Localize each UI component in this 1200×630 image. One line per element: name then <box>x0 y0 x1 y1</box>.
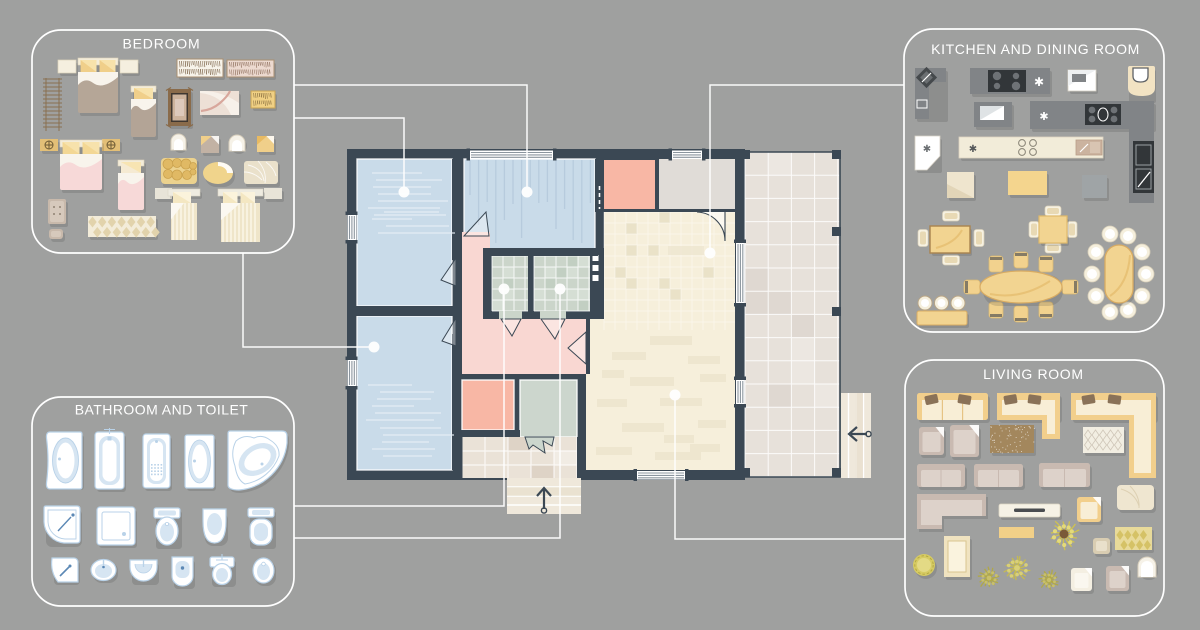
svg-text:LIVING ROOM: LIVING ROOM <box>983 366 1084 382</box>
svg-text:KITCHEN AND DINING ROOM: KITCHEN AND DINING ROOM <box>931 41 1140 57</box>
svg-text:BEDROOM: BEDROOM <box>123 35 201 51</box>
svg-text:✱: ✱ <box>923 144 931 155</box>
svg-text:✱: ✱ <box>1039 111 1048 123</box>
svg-text:✱: ✱ <box>969 144 977 155</box>
svg-text:✱: ✱ <box>1034 75 1044 89</box>
svg-text:BATHROOM AND TOILET: BATHROOM AND TOILET <box>75 402 248 418</box>
